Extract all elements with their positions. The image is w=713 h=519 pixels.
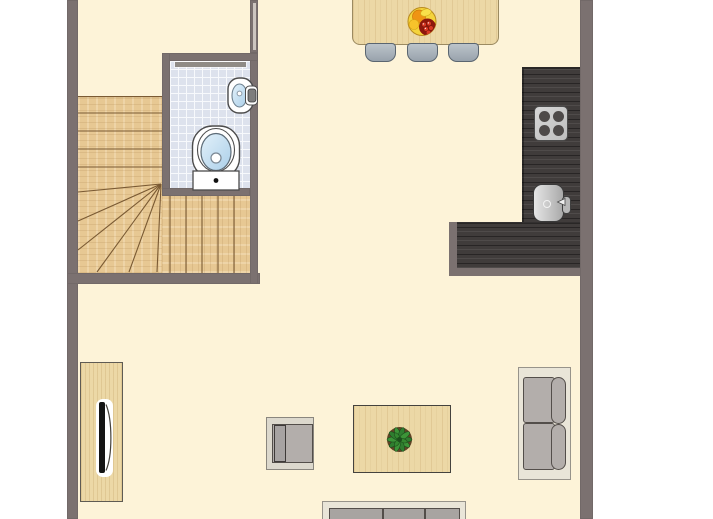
burner-icon xyxy=(553,111,564,122)
wall-bathroom-top xyxy=(162,53,258,61)
burner-icon xyxy=(539,125,550,136)
cooktop xyxy=(534,106,568,141)
wall-left xyxy=(67,0,78,519)
burner-icon xyxy=(553,125,564,136)
sofa-back-cushion xyxy=(551,377,566,424)
wall-right xyxy=(580,0,593,519)
television xyxy=(99,402,105,473)
kitchen-counter-edge-bottom xyxy=(449,268,580,276)
kitchen-counter-horizontal xyxy=(457,222,580,268)
floor-plan xyxy=(0,0,713,519)
staircase-lower-run xyxy=(162,196,250,273)
dining-chair-1 xyxy=(365,43,396,62)
cushion-divider xyxy=(382,509,384,519)
wall-bathroom-left xyxy=(162,53,170,196)
staircase-upper-run xyxy=(78,96,162,273)
partial-sofa-bottom xyxy=(322,501,466,519)
bathroom-door-bar xyxy=(175,62,246,67)
wall-partition-top xyxy=(250,0,258,53)
sink-drain-icon xyxy=(543,200,551,208)
bathroom-tiled-floor xyxy=(170,61,250,188)
sofa-back-cushion xyxy=(551,424,566,470)
kitchen-sink xyxy=(533,184,564,222)
dining-chair-2 xyxy=(407,43,438,62)
wall-bathroom-bottom xyxy=(162,188,250,196)
burner-icon xyxy=(539,111,550,122)
armchair-backrest xyxy=(274,425,286,462)
coffee-table xyxy=(353,405,451,473)
wall-below-staircase xyxy=(67,273,260,284)
cushion-divider xyxy=(424,509,426,519)
wall-bathroom-right xyxy=(250,53,258,284)
sofa-cushion-row xyxy=(329,508,460,519)
armchair xyxy=(266,417,314,470)
two-seat-sofa xyxy=(518,367,571,480)
dining-table xyxy=(352,0,499,45)
dining-chair-3 xyxy=(448,43,479,62)
partition-stripe xyxy=(253,3,256,50)
kitchen-faucet xyxy=(562,196,571,214)
